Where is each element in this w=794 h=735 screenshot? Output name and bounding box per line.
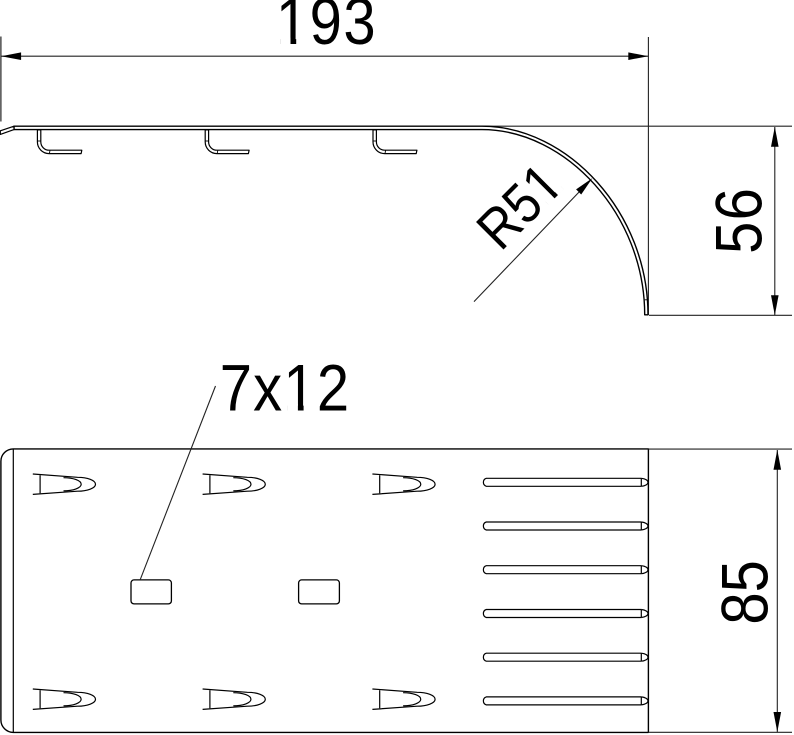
svg-text:85: 85 (709, 560, 782, 625)
svg-text:56: 56 (703, 187, 776, 254)
svg-text:193: 193 (276, 0, 377, 59)
svg-text:7x12: 7x12 (220, 352, 351, 425)
